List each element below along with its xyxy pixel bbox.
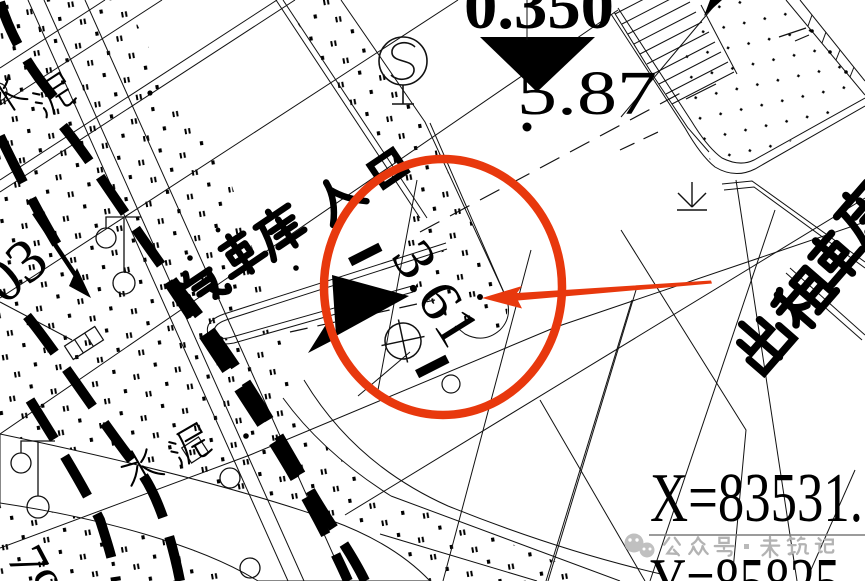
svg-text:Y=85825: Y=85825 [650, 545, 840, 581]
svg-text:5.87: 5.87 [517, 60, 657, 128]
svg-text:X=83531.: X=83531. [650, 460, 863, 537]
svg-text:0.350: 0.350 [464, 0, 614, 43]
